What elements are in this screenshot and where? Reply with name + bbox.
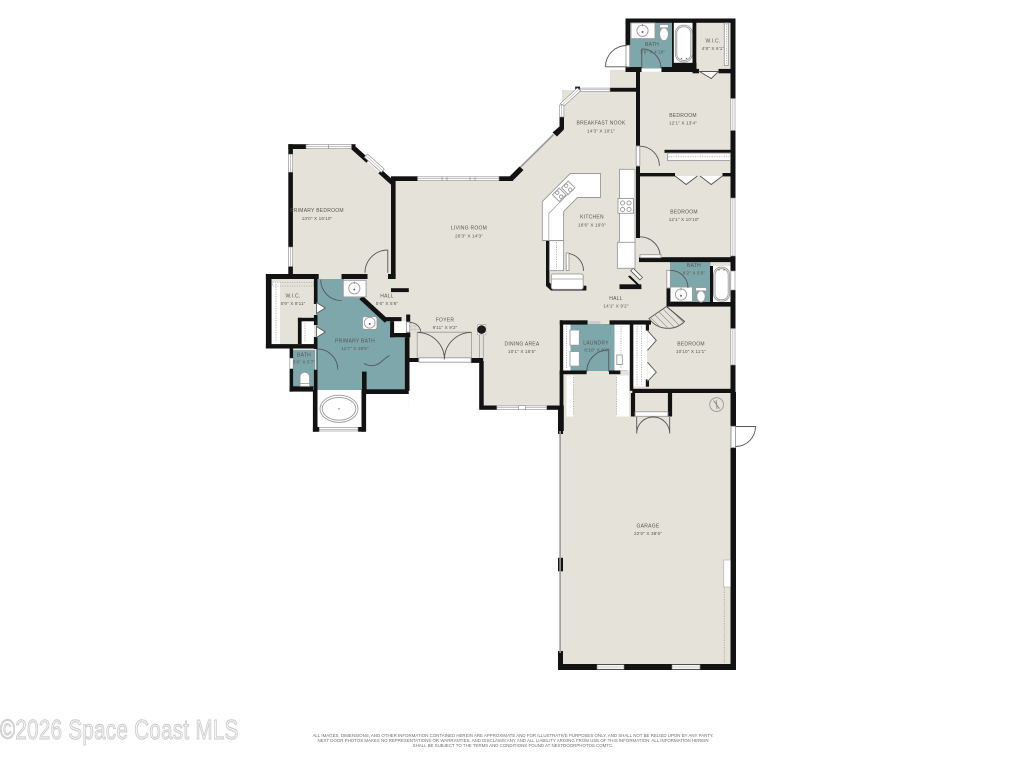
svg-text:14'3" X 10'1": 14'3" X 10'1" (587, 129, 615, 134)
svg-text:14'1" X 9'2": 14'1" X 9'2" (603, 304, 628, 309)
svg-text:W.I.C.: W.I.C. (705, 39, 720, 45)
svg-text:DINING AREA: DINING AREA (505, 342, 540, 348)
svg-text:11'7" X 19'6": 11'7" X 19'6" (341, 346, 369, 351)
svg-text:6'10" X 6'0": 6'10" X 6'0" (584, 348, 609, 353)
svg-text:BEDROOM: BEDROOM (669, 113, 697, 119)
svg-text:BEDROOM: BEDROOM (670, 210, 698, 216)
svg-text:W.I.C.: W.I.C. (285, 294, 300, 300)
svg-text:3'0" X 5'7": 3'0" X 5'7" (293, 360, 316, 365)
svg-text:5'6" X 5'6": 5'6" X 5'6" (376, 301, 399, 306)
svg-text:16'6" X 16'0": 16'6" X 16'0" (578, 223, 606, 228)
svg-text:BATH: BATH (645, 42, 659, 48)
svg-text:12'1" X 10'10": 12'1" X 10'10" (669, 217, 700, 222)
svg-text:4'8" X 6'1": 4'8" X 6'1" (702, 46, 725, 51)
svg-text:5'9" X 8'11": 5'9" X 8'11" (281, 301, 306, 306)
svg-text:PRIMARY BATH: PRIMARY BATH (335, 339, 375, 345)
svg-text:13'0" X 16'10": 13'0" X 16'10" (302, 216, 333, 221)
svg-text:BREAKFAST NOOK: BREAKFAST NOOK (577, 121, 626, 127)
svg-text:PRIMARY BEDROOM: PRIMARY BEDROOM (290, 208, 344, 214)
svg-text:10'1" X 15'5": 10'1" X 15'5" (508, 349, 536, 354)
svg-text:22'0" X 38'6": 22'0" X 38'6" (634, 531, 662, 536)
svg-text:BEDROOM: BEDROOM (677, 342, 705, 348)
svg-text:BATH: BATH (297, 353, 311, 359)
svg-text:8'2" X 5'6": 8'2" X 5'6" (683, 271, 706, 276)
svg-text:HALL: HALL (380, 294, 394, 300)
svg-text:10'10" X 11'1": 10'10" X 11'1" (676, 349, 706, 354)
svg-text:HALL: HALL (609, 296, 623, 302)
svg-text:LIVING ROOM: LIVING ROOM (451, 226, 487, 232)
svg-text:KITCHEN: KITCHEN (580, 215, 604, 221)
svg-text:FOYER: FOYER (436, 318, 455, 324)
svg-text:12'1" X 13'4": 12'1" X 13'4" (669, 121, 697, 126)
svg-text:20'3" X 14'3": 20'3" X 14'3" (455, 234, 483, 239)
svg-text:GARAGE: GARAGE (637, 524, 660, 530)
svg-text:9'11" X 9'2": 9'11" X 9'2" (433, 325, 458, 330)
svg-text:BATH: BATH (687, 263, 701, 269)
svg-text:LAUNDRY: LAUNDRY (583, 341, 609, 347)
svg-text:7'8" X 4'10": 7'8" X 4'10" (640, 50, 665, 55)
